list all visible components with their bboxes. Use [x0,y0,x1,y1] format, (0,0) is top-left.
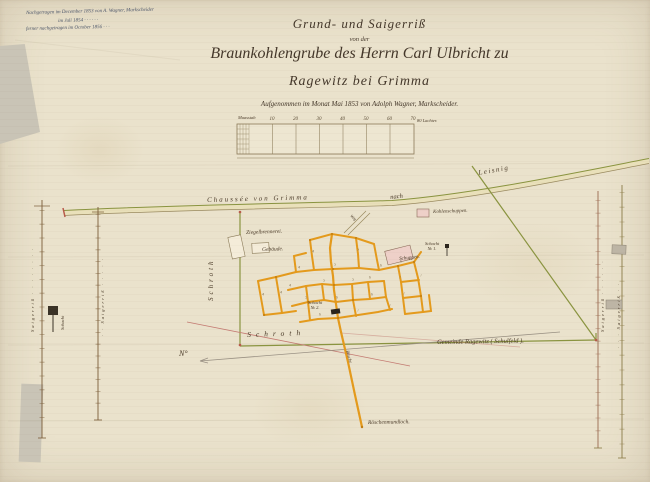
gallery-node-mark: 4 [312,250,314,254]
gallery-node-mark: 7 [420,274,422,278]
gallery-node-mark: 4 [289,284,291,288]
gallery-node-mark: 5 [357,248,359,252]
gallery-node-mark: 6 [380,264,382,268]
gallery-node-mark: 7 [399,276,401,280]
gallery-node-mark: 6 [369,276,371,280]
gallery-node-mark: 6 [336,296,338,300]
gallery-node-mark: 5 [334,263,336,267]
gallery-node-mark: 5 [323,279,325,283]
gallery-node-mark: 6 [371,293,373,297]
gallery-node-marks: 4545667455677566767744 [0,0,650,482]
gallery-node-mark: 7 [357,309,359,313]
gallery-node-mark: 5 [305,296,307,300]
gallery-node-mark: 4 [262,293,264,297]
gallery-node-mark: 6 [319,313,321,317]
gallery-node-mark: 6 [400,260,402,264]
gallery-node-mark: 7 [389,304,391,308]
gallery-node-mark: 4 [280,291,282,295]
gallery-node-mark: 7 [403,292,405,296]
gallery-node-mark: 7 [416,256,418,260]
scanned-mine-map: Nachgetragen im December 1853 von A. Wag… [0,0,650,482]
gallery-node-mark: 5 [352,278,354,282]
gallery-node-mark: 4 [298,266,300,270]
